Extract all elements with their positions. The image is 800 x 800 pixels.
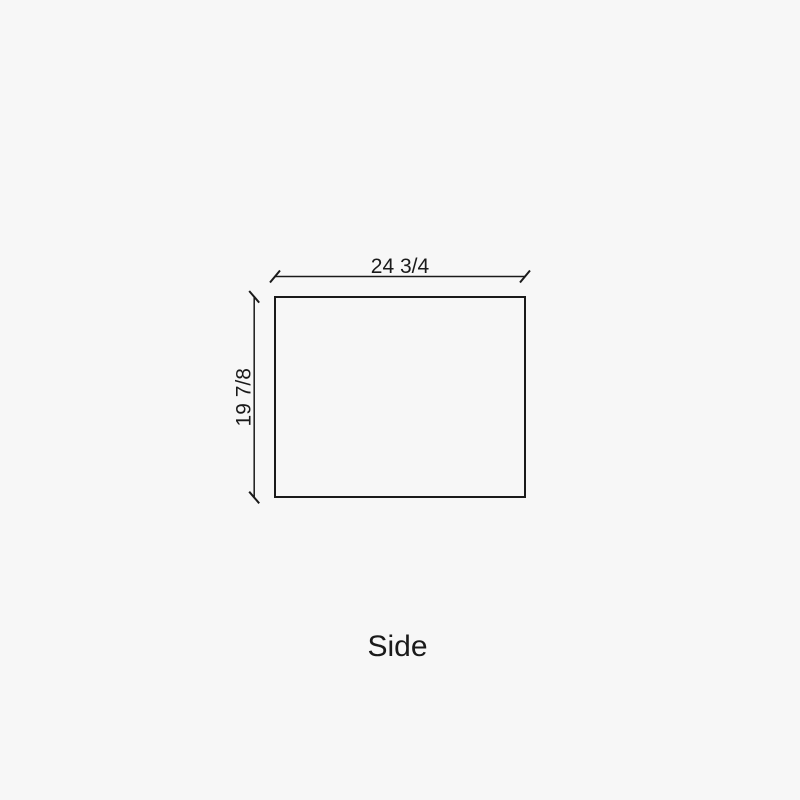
svg-text:Side: Side: [367, 630, 427, 663]
svg-text:24 3/4: 24 3/4: [371, 255, 430, 278]
svg-text:19 7/8: 19 7/8: [233, 368, 256, 426]
